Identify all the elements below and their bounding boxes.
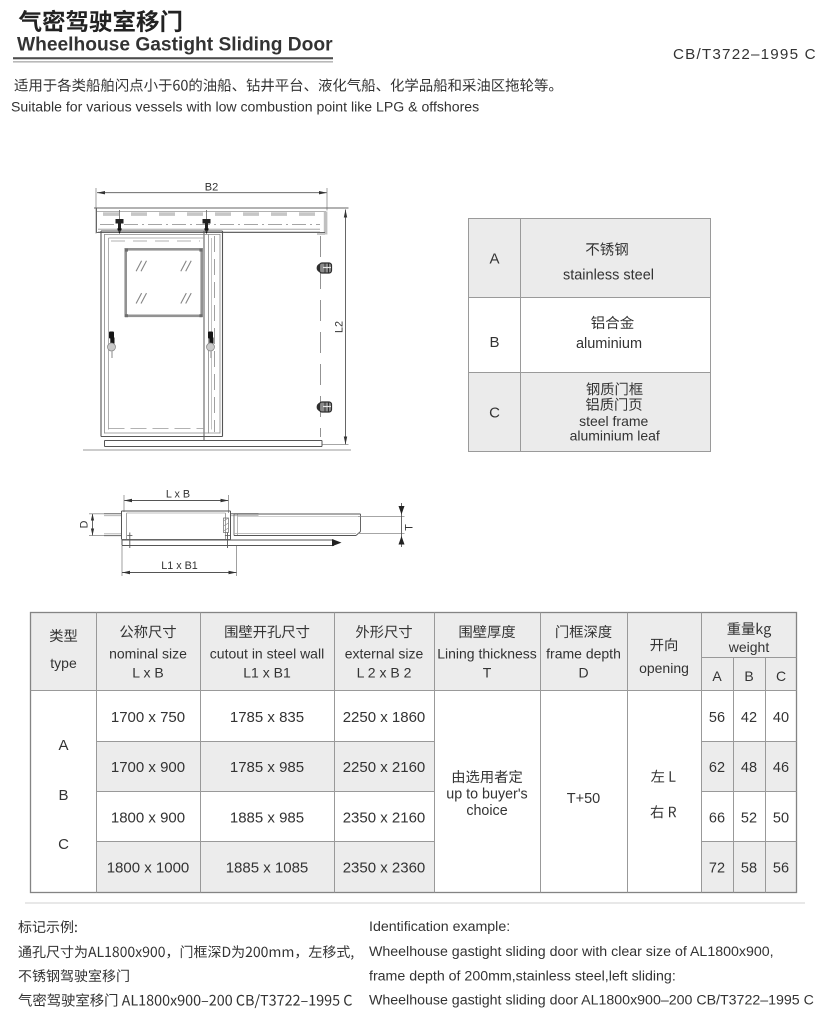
- svg-text:48: 48: [741, 760, 757, 776]
- svg-text:L1 x B1: L1 x B1: [161, 560, 198, 572]
- svg-text:1885 x 1085: 1885 x 1085: [226, 860, 309, 877]
- svg-text:CB/T3722–1995 C: CB/T3722–1995 C: [673, 46, 817, 63]
- svg-text:2350 x 2360: 2350 x 2360: [343, 860, 426, 877]
- svg-text:type: type: [50, 655, 77, 671]
- svg-text:A: A: [712, 668, 722, 684]
- svg-text:2250 x 1860: 2250 x 1860: [343, 709, 426, 726]
- svg-text:B2: B2: [205, 182, 218, 194]
- svg-text:up to buyer's: up to buyer's: [446, 787, 527, 803]
- svg-text:1700 x 900: 1700 x 900: [111, 759, 185, 776]
- svg-text:opening: opening: [639, 660, 689, 676]
- svg-text:62: 62: [709, 760, 725, 776]
- svg-text:66: 66: [709, 811, 725, 827]
- svg-text:L2: L2: [334, 321, 346, 333]
- svg-text:external size: external size: [345, 646, 424, 662]
- svg-text:stainless steel: stainless steel: [563, 268, 654, 284]
- svg-text:B: B: [58, 787, 68, 804]
- svg-text:1800 x 900: 1800 x 900: [111, 810, 185, 827]
- svg-text:D: D: [79, 520, 91, 528]
- svg-text:L x B: L x B: [132, 665, 163, 681]
- svg-text:B: B: [489, 334, 499, 351]
- svg-text:Wheelhouse Gastight Sliding Do: Wheelhouse Gastight Sliding Door: [17, 35, 333, 56]
- svg-text:nominal size: nominal size: [109, 646, 187, 662]
- svg-text:1700 x 750: 1700 x 750: [111, 709, 185, 726]
- svg-text:Suitable for various vessels w: Suitable for various vessels with low co…: [11, 99, 479, 115]
- svg-text:T+50: T+50: [567, 791, 600, 807]
- svg-text:Wheelhouse gastight sliding do: Wheelhouse gastight sliding door AL1800x…: [369, 993, 814, 1009]
- svg-text:T: T: [483, 665, 492, 681]
- svg-text:C: C: [58, 836, 69, 853]
- svg-text:C: C: [489, 405, 500, 422]
- svg-text:L x B: L x B: [166, 488, 190, 500]
- svg-text:Lining thickness: Lining thickness: [437, 646, 537, 662]
- svg-text:cutout in steel wall: cutout in steel wall: [210, 646, 324, 662]
- svg-text:aluminium leaf: aluminium leaf: [570, 428, 660, 444]
- svg-text:50: 50: [773, 811, 789, 827]
- svg-text:T: T: [404, 524, 416, 531]
- svg-text:52: 52: [741, 811, 757, 827]
- svg-text:56: 56: [773, 861, 789, 877]
- svg-text:1785 x 985: 1785 x 985: [230, 759, 304, 776]
- svg-text:Wheelhouse gastight sliding do: Wheelhouse gastight sliding door with cl…: [369, 944, 774, 960]
- svg-text:L1 x B1: L1 x B1: [243, 665, 291, 681]
- svg-text:1800 x 1000: 1800 x 1000: [107, 860, 190, 877]
- svg-text:C: C: [776, 668, 786, 684]
- svg-text:A: A: [58, 737, 68, 754]
- svg-text:58: 58: [741, 861, 757, 877]
- svg-text:Identification example:: Identification example:: [369, 919, 510, 935]
- svg-text:46: 46: [773, 760, 789, 776]
- svg-text:aluminium: aluminium: [576, 336, 642, 352]
- svg-text:choice: choice: [466, 803, 507, 819]
- svg-text:A: A: [489, 251, 499, 268]
- svg-text:42: 42: [741, 710, 757, 726]
- svg-text:72: 72: [709, 861, 725, 877]
- svg-text:2350 x 2160: 2350 x 2160: [343, 810, 426, 827]
- svg-text:2250 x 2160: 2250 x 2160: [343, 759, 426, 776]
- svg-text:frame depth of 200mm,stainless: frame depth of 200mm,stainless steel,lef…: [369, 969, 676, 985]
- svg-text:frame depth: frame depth: [546, 646, 621, 662]
- svg-text:weight: weight: [728, 639, 770, 655]
- svg-text:40: 40: [773, 710, 789, 726]
- svg-text:1885 x 985: 1885 x 985: [230, 810, 304, 827]
- svg-text:L 2 x B 2: L 2 x B 2: [357, 665, 412, 681]
- svg-text:D: D: [578, 665, 588, 681]
- svg-text:56: 56: [709, 710, 725, 726]
- svg-text:1785 x 835: 1785 x 835: [230, 709, 304, 726]
- svg-text:B: B: [744, 668, 753, 684]
